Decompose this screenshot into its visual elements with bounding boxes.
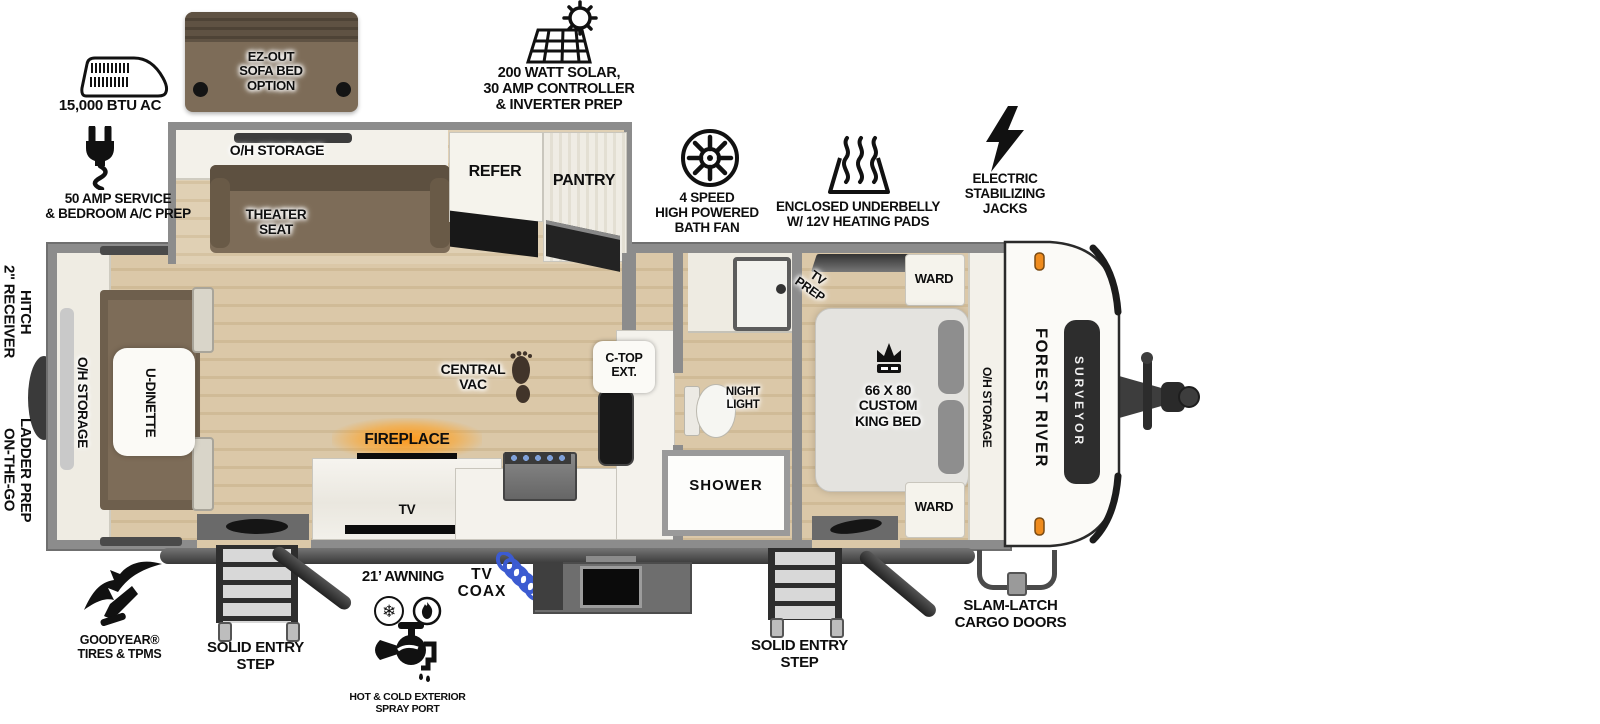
solar-label: 200 WATT SOLAR, 30 AMP CONTROLLER & INVE… — [479, 66, 639, 114]
fireplace-label: FIREPLACE — [347, 431, 467, 448]
crown-icon — [872, 340, 906, 376]
bath-sink-faucet — [776, 284, 786, 294]
theater-seat-label: THEATER SEAT — [226, 208, 326, 238]
tires-label: GOODYEAR® TIRES & TPMS — [52, 634, 187, 662]
theater-seat-arm-right — [430, 178, 450, 248]
jacks-label: ELECTRIC STABILIZING JACKS — [950, 172, 1060, 217]
hitch-ball-socket — [1179, 387, 1199, 407]
step-foot — [770, 618, 784, 638]
entry-rug-left — [226, 519, 288, 534]
front-cap-and-hitch — [995, 232, 1205, 556]
footprint-icon — [508, 350, 536, 406]
kitchen-sink — [598, 390, 634, 466]
marker-light-bottom — [1035, 518, 1044, 535]
heated-underbelly-icon — [822, 124, 896, 198]
bath-right-wall — [792, 253, 802, 540]
spray-port-faucet-icon — [368, 622, 444, 682]
marker-light-top — [1035, 253, 1044, 270]
entry-step-left-label: SOLID ENTRY STEP — [198, 640, 313, 673]
pantry-label: PANTRY — [543, 172, 625, 190]
sofa-cupholder-right — [336, 82, 351, 97]
sofa-cupholder-left — [193, 82, 208, 97]
sofa-option-label: EZ-OUT SOFA BED OPTION — [221, 50, 321, 93]
rear-bottom-window-sill — [100, 537, 182, 546]
lightning-bolt-icon — [984, 106, 1026, 172]
tv-label: TV — [382, 503, 432, 518]
slide-right-wall-stub — [622, 253, 636, 337]
cargo-door-latch — [1007, 572, 1027, 596]
ac-unit-icon — [78, 54, 170, 100]
spray-port-label: HOT & COLD EXTERIOR SPRAY PORT — [340, 692, 475, 715]
brand-surveyor: SURVEYOR — [1072, 328, 1092, 476]
brand-forest-river: FOREST RIVER — [1032, 308, 1054, 488]
ac-label: 15,000 BTU AC — [40, 98, 180, 115]
ez-out-sofa-back — [185, 12, 358, 42]
bath-fan-icon — [679, 127, 741, 189]
receiver-hitch-label: 2" RECEIVER HITCH — [0, 260, 40, 364]
entry-step-right — [768, 548, 842, 620]
bed-pillow-bottom — [938, 400, 964, 474]
service-label: 50 AMP SERVICE & BEDROOM A/C PREP — [28, 192, 208, 222]
bath-fan-label: 4 SPEED HIGH POWERED BATH FAN — [647, 191, 767, 236]
rv-floorplan-diagram: O/H STORAGE U-DINETTE O/H STORAGE THEATE… — [0, 0, 1600, 724]
power-plug-icon — [78, 126, 122, 190]
burner-dots — [508, 455, 568, 462]
hitch-jack-post — [1143, 358, 1152, 430]
hitch-jack-handle — [1141, 352, 1153, 364]
theater-seat-back — [210, 165, 450, 191]
slide-oh-storage-label: O/H STORAGE — [222, 143, 332, 158]
cargo-doors-label: SLAM-LATCH CARGO DOORS — [938, 598, 1083, 631]
ladder-prep-label: ON-THE-GO LADDER PREP — [0, 408, 40, 532]
ctop-ext-label: C-TOP EXT. — [595, 352, 653, 380]
refer-label: REFER — [452, 163, 538, 181]
ward-bottom-label: WARD — [905, 500, 963, 514]
ward-top-label: WARD — [905, 272, 963, 286]
entry-step-right-label: SOLID ENTRY STEP — [742, 638, 857, 671]
bed-pillow-top — [938, 320, 964, 394]
exterior-tv — [580, 566, 642, 608]
rear-oh-storage-label: O/H STORAGE — [74, 348, 94, 456]
dinette-end-shelf-bottom — [192, 437, 214, 511]
exterior-compartment-shade — [533, 562, 563, 610]
dinette-end-shelf-top — [192, 287, 214, 353]
bath-left-wall-upper — [673, 253, 683, 373]
tv-bar — [345, 525, 470, 534]
exterior-tv-mount — [586, 556, 636, 562]
step-foot — [830, 618, 844, 638]
night-light-label: NIGHT LIGHT — [714, 386, 772, 411]
goodyear-wingfoot-icon — [80, 558, 164, 628]
bath-sink — [733, 257, 791, 331]
fireplace-bar — [357, 453, 457, 459]
underbelly-label: ENCLOSED UNDERBELLY W/ 12V HEATING PADS — [768, 200, 948, 230]
u-dinette-label: U-DINETTE — [142, 362, 162, 444]
shower-label: SHOWER — [672, 478, 780, 495]
rear-window — [60, 308, 74, 470]
awning-label: 21’ AWNING — [348, 569, 458, 586]
king-bed-label: 66 X 80 CUSTOM KING BED — [838, 383, 938, 429]
front-cap-body — [1005, 242, 1119, 546]
solar-panel-icon — [524, 0, 600, 66]
central-vac-label: CENTRAL VAC — [433, 362, 513, 393]
